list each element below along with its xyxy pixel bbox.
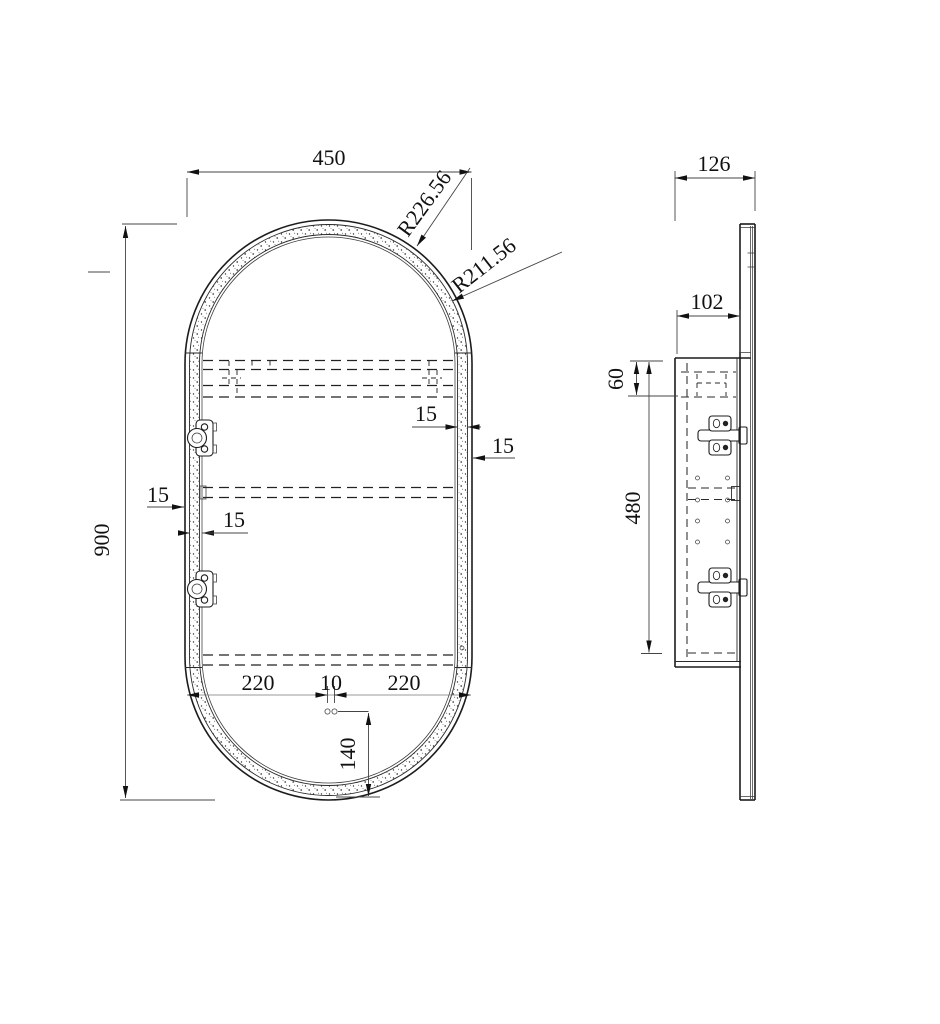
dim-front-height: 900: [89, 524, 114, 557]
dim-bottom-gap: 10: [320, 670, 342, 695]
dim-side-top-inset: 60: [603, 368, 628, 390]
paper-background: [0, 0, 940, 1024]
dim-led-strip-left: 15: [223, 507, 245, 532]
dim-frame-right: 15: [492, 433, 514, 458]
technical-drawing: 450 900 R226.56 R211.56 15 15 15 15: [0, 0, 940, 1024]
dim-frame-left: 15: [147, 482, 169, 507]
drawing-sheet: 450 900 R226.56 R211.56 15 15 15 15: [0, 0, 940, 1024]
dim-side-cabinet-height: 480: [620, 492, 645, 525]
dim-bottom-right-span: 220: [388, 670, 421, 695]
dim-side-depth-total: 126: [698, 151, 731, 176]
dim-led-strip-right: 15: [415, 401, 437, 426]
dim-hole-offset: 140: [335, 738, 360, 771]
dim-front-width: 450: [313, 145, 346, 170]
dim-bottom-left-span: 220: [242, 670, 275, 695]
dim-side-cabinet-depth: 102: [691, 289, 724, 314]
